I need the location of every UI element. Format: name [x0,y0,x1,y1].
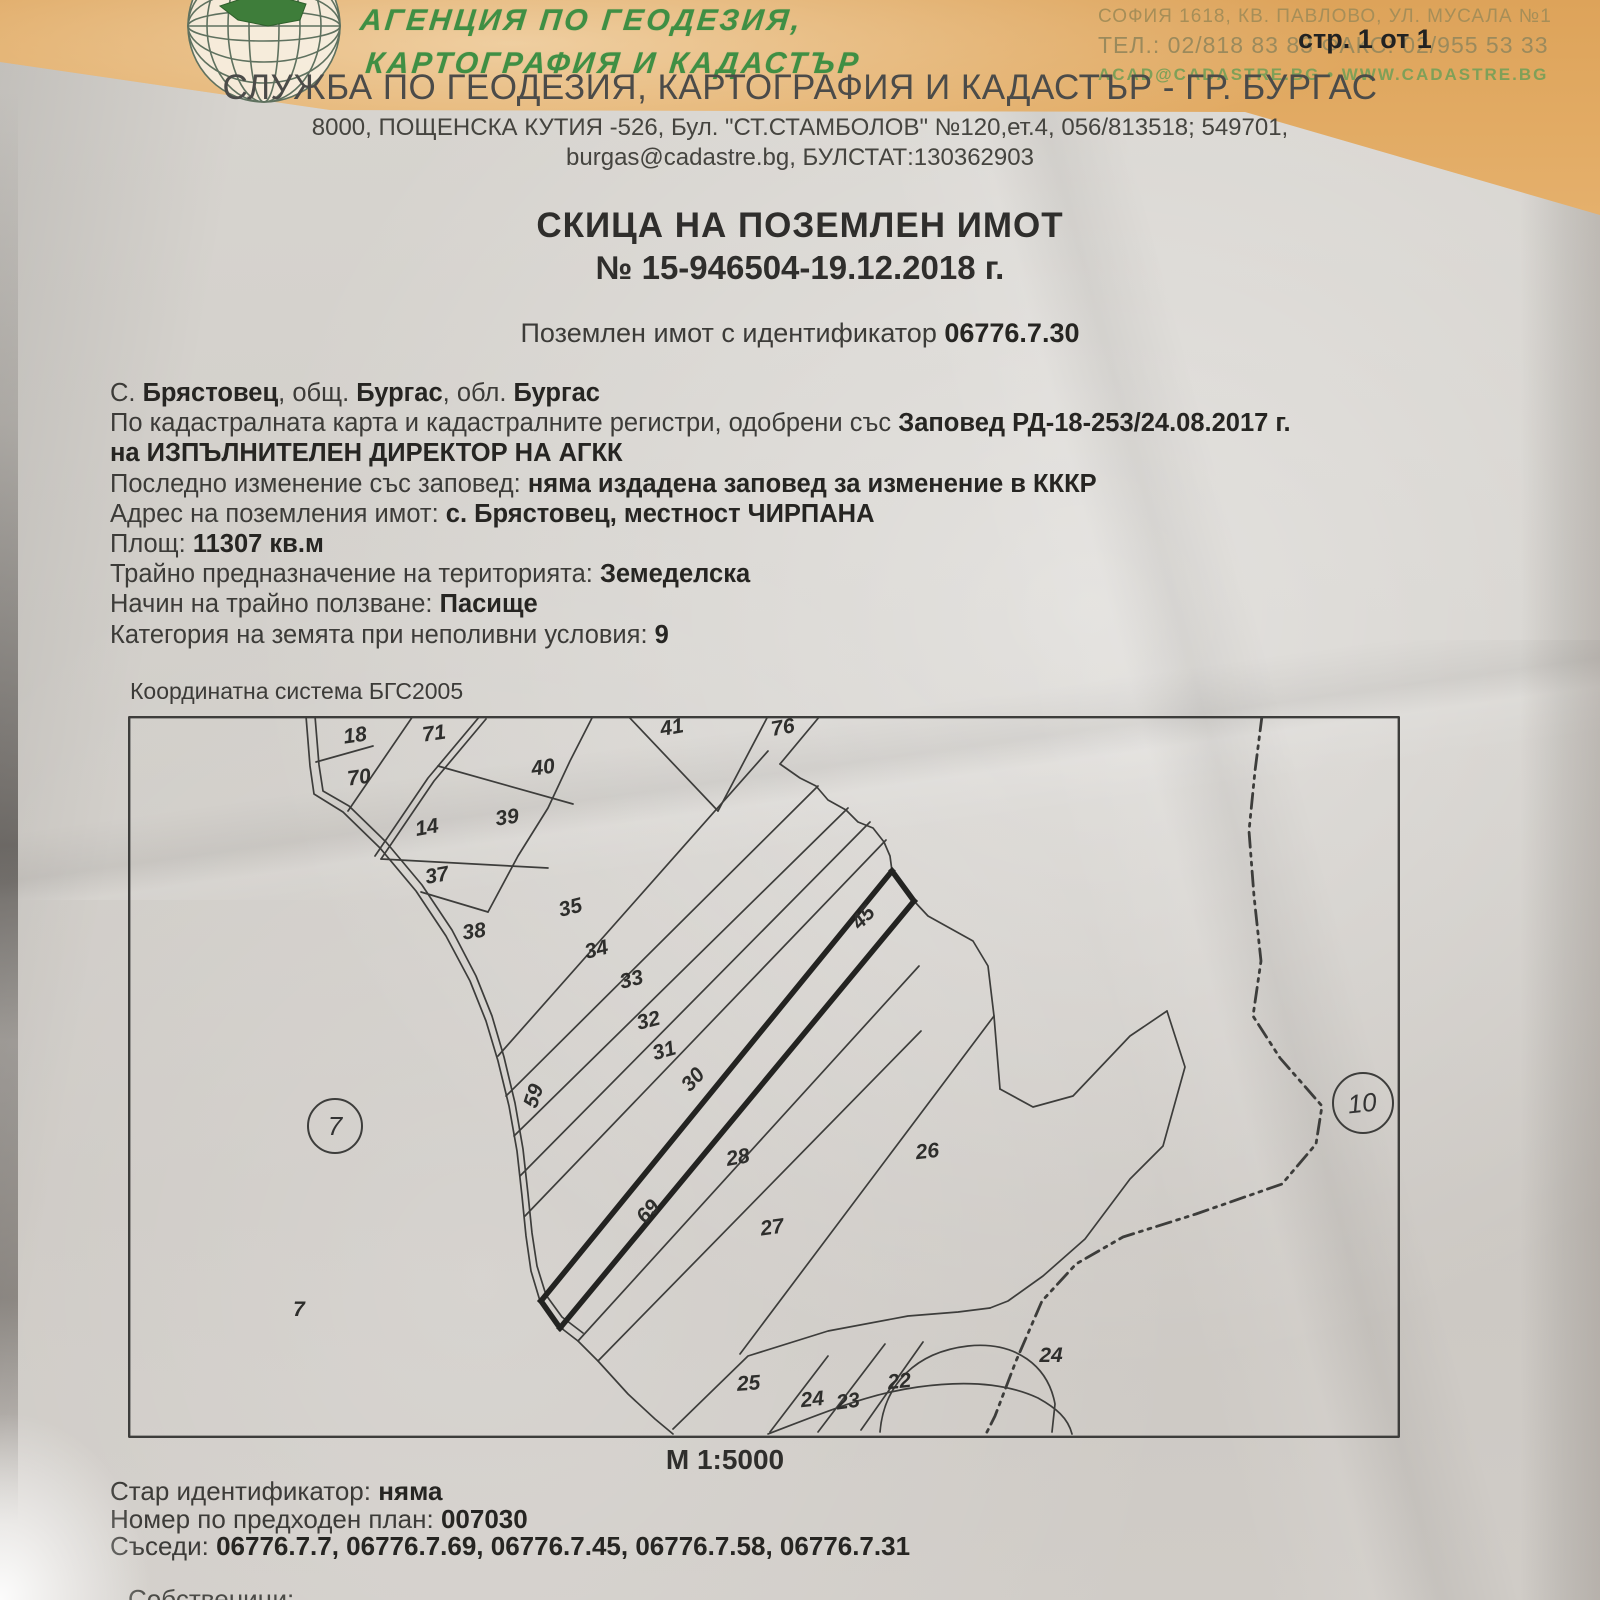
property-line: Адрес на поземления имот: с. Брястовец, … [110,499,1510,529]
parcel-identifier-line: Поземлен имот с идентификатор 06776.7.30 [0,318,1600,349]
parcel-label-22: 22 [886,1369,913,1394]
footer-line: Номер по предходен план: 007030 [110,1506,1530,1534]
cadastral-map-svg: 18 70 71 40 39 14 37 38 41 76 35 34 33 3… [128,716,1400,1438]
parcel-label-38: 38 [461,919,488,945]
parcel-identifier: 06776.7.30 [944,318,1079,348]
parcel-label-25: 25 [735,1371,761,1396]
property-line: С. Брястовец, общ. Бургас, обл. Бургас [110,378,1510,408]
footer-line: Съседи: 06776.7.7, 06776.7.69, 06776.7.4… [110,1533,1530,1561]
footer-line: Стар идентификатор: няма [110,1478,1530,1506]
parcel-label-23: 23 [834,1389,862,1415]
parcel-label-40: 40 [529,755,557,781]
parcel-label-76: 76 [769,716,796,741]
property-line: на ИЗПЪЛНИТЕЛЕН ДИРЕКТОР НА АГКК [110,438,1510,468]
property-line: Начин на трайно ползване: Пасище [110,589,1510,619]
property-description: С. Брястовец, общ. Бургас, обл. Бургас П… [110,378,1510,650]
parcel-label-18: 18 [342,723,369,749]
office-address-line2: burgas@cadastre.bg, БУЛСТАТ:130362903 [0,144,1600,172]
property-line: Площ: 11307 кв.м [110,529,1510,559]
parcel-boundaries [129,716,1399,1437]
map-scale-label: М 1:5000 [575,1444,875,1476]
parcel-label-26: 26 [914,1139,941,1164]
property-line: Последно изменение със заповед: няма изд… [110,469,1510,499]
parcel-label-69: 69 [632,1195,665,1228]
parcel-label-35: 35 [556,894,585,922]
cadastral-map: 18 70 71 40 39 14 37 38 41 76 35 34 33 3… [128,716,1400,1438]
parcel-label-45: 45 [846,901,880,935]
parcel-label-32: 32 [634,1007,663,1035]
property-line: Трайно предназначение на територията: Зе… [110,559,1510,589]
region-label-10-circled: 10 [1346,1087,1378,1120]
document-number: № 15-946504-19.12.2018 г. [0,249,1600,287]
parcel-label-27: 27 [758,1214,787,1240]
parcel-label-24: 24 [799,1387,826,1412]
parcel-label-7: 7 [293,1298,306,1321]
parcel-label-39: 39 [494,805,521,831]
page-indicator: стр. 1 от 1 [1298,24,1432,55]
parcel-label-24-right: 24 [1038,1344,1063,1367]
region-boundary-dashed-line [986,716,1322,1434]
coordinate-system-label: Координатна система БГС2005 [130,678,463,705]
clipped-owners-line: Собственици: [128,1584,294,1600]
parcel-label-14: 14 [413,814,440,841]
property-line: По кадастралната карта и кадастралните р… [110,408,1510,438]
parcel-label-37: 37 [423,862,451,889]
parcel-label-28: 28 [723,1144,751,1171]
photo-edge-shadow [0,90,18,1600]
parcel-label-34: 34 [582,936,611,964]
footer-attributes: Стар идентификатор: няма Номер по предхо… [110,1478,1530,1561]
parcel-label-30-subject: 30 [677,1063,710,1096]
parcel-identifier-prefix: Поземлен имот с идентификатор [521,318,945,348]
office-address-line1: 8000, ПОЩЕНСКА КУТИЯ -526, Бул. "СТ.СТАМ… [0,114,1600,142]
agency-name-line1: АГЕНЦИЯ ПО ГЕОДЕЗИЯ, [358,4,867,38]
parcel-label-71: 71 [421,721,447,747]
property-line: Категория на земята при неполивни услови… [110,620,1510,650]
scanned-cadastral-document: АГЕНЦИЯ ПО ГЕОДЕЗИЯ, КАРТОГРАФИЯ И КАДАС… [0,0,1600,1600]
parcel-label-33: 33 [617,966,646,994]
region-label-7-circled: 7 [328,1111,344,1141]
parcel-label-70: 70 [346,765,373,791]
parcel-label-41: 41 [657,716,685,741]
office-title: СЛУЖБА ПО ГЕОДЕЗИЯ, КАРТОГРАФИЯ И КАДАСТ… [0,68,1600,108]
document-title: СКИЦА НА ПОЗЕМЛЕН ИМОТ [0,206,1600,246]
